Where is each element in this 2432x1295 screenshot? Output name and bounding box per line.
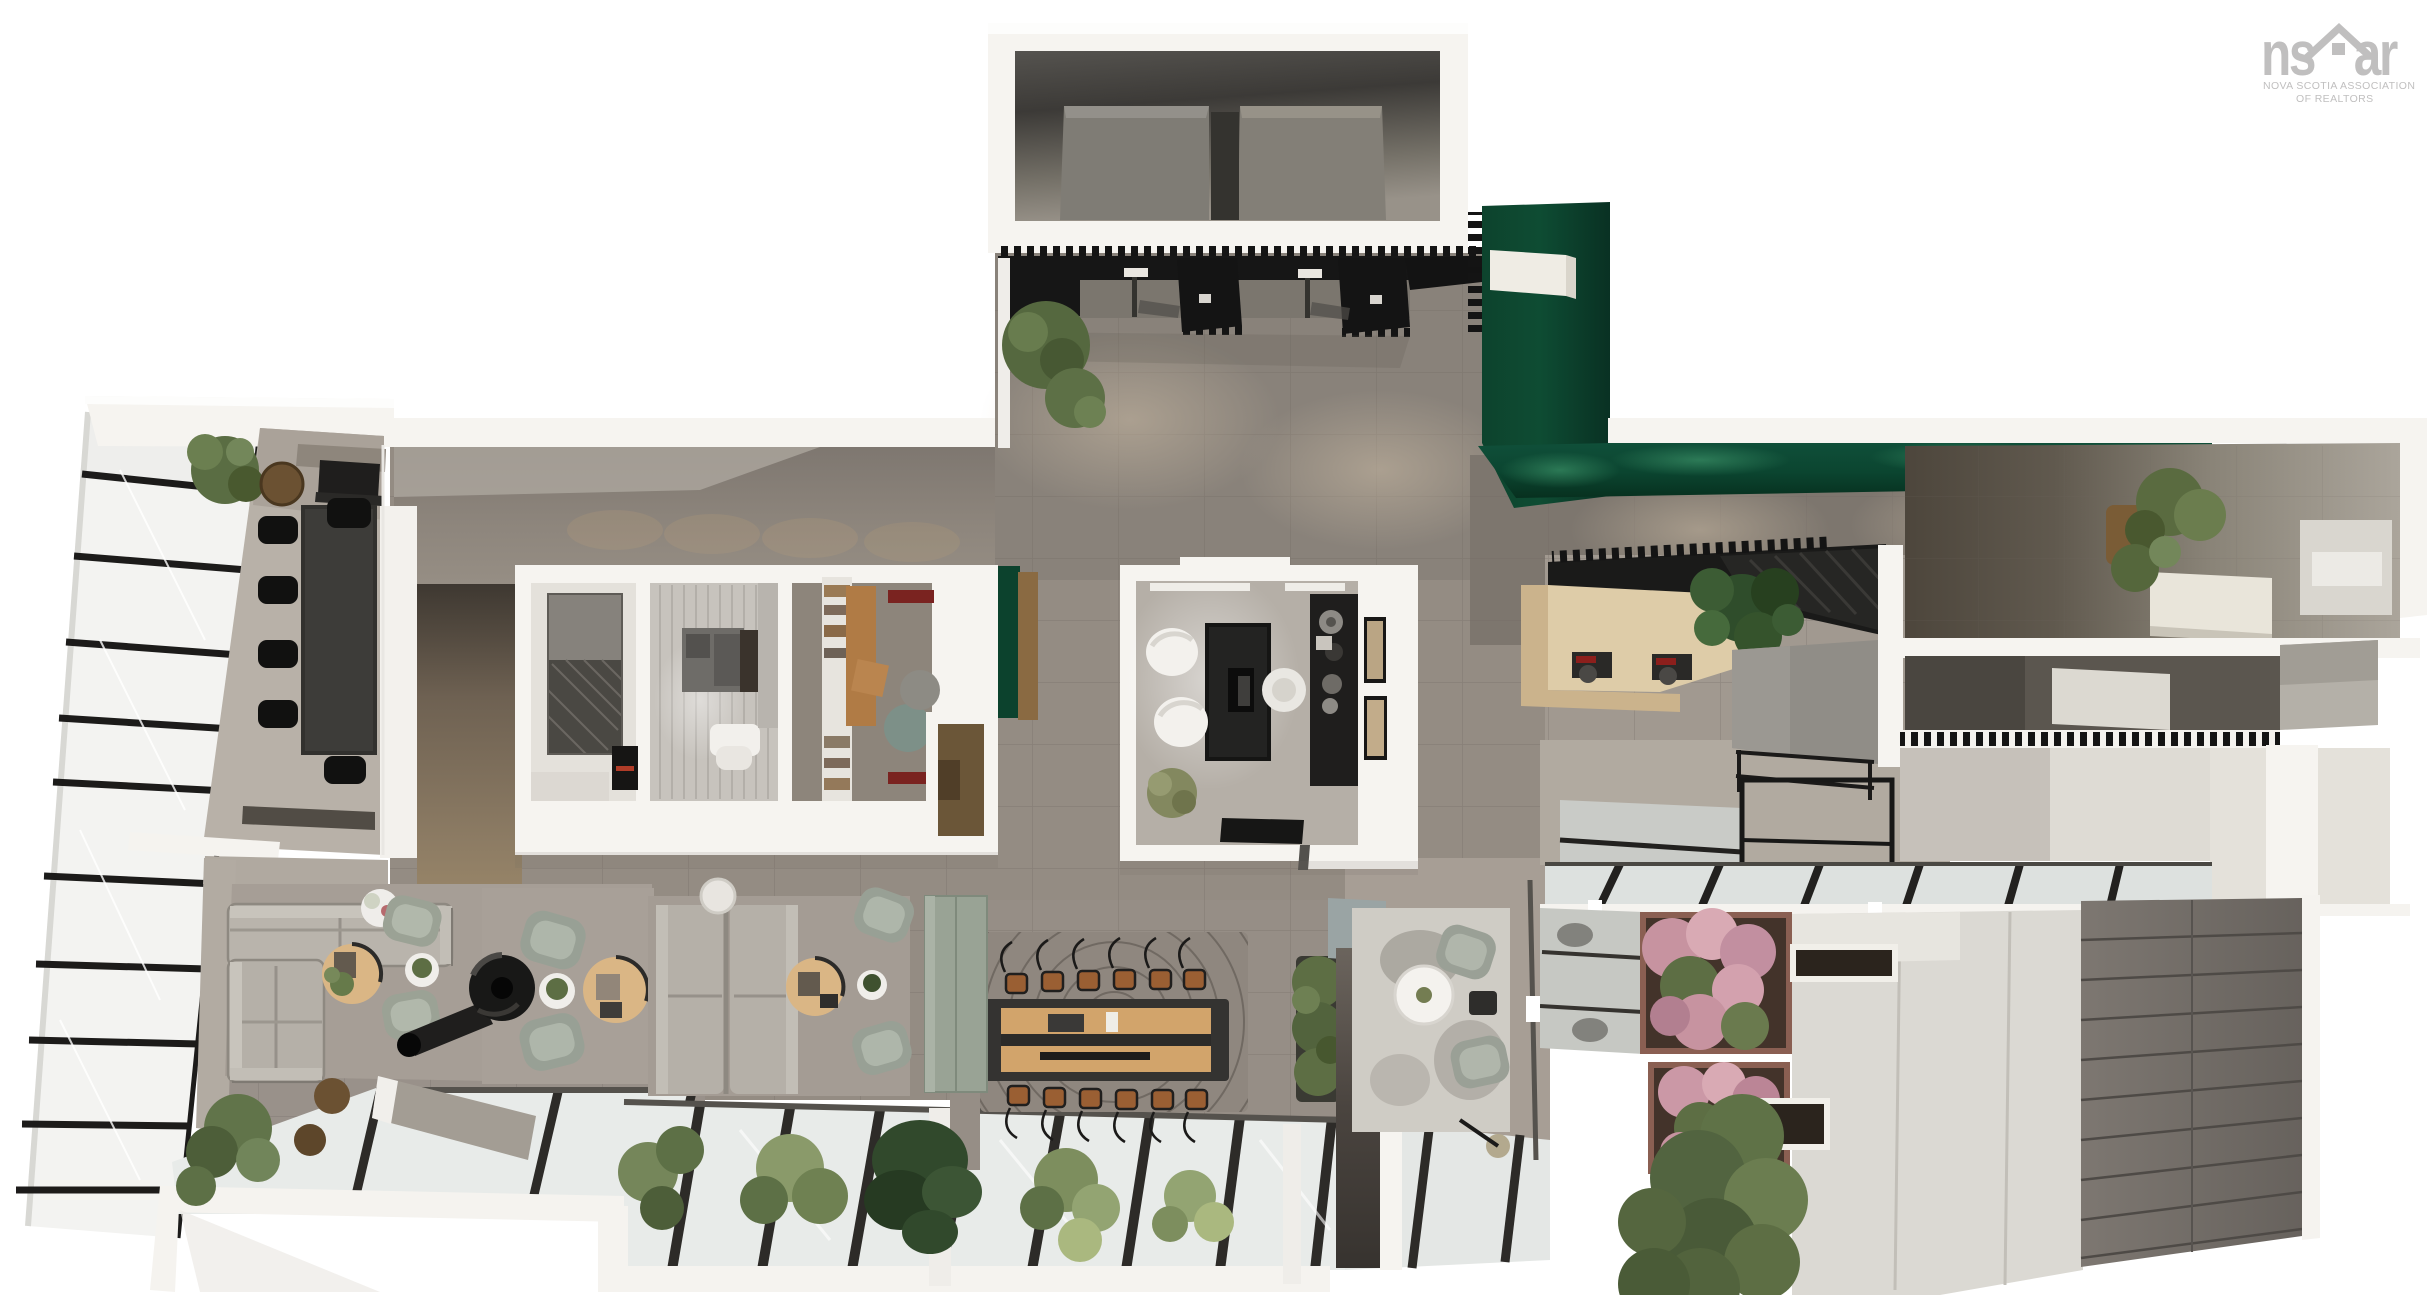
svg-text:OF REALTORS: OF REALTORS [2296, 93, 2374, 105]
svg-text:NOVA SCOTIA ASSOCIATION: NOVA SCOTIA ASSOCIATION [2263, 80, 2415, 92]
svg-text:ar: ar [2354, 19, 2398, 89]
